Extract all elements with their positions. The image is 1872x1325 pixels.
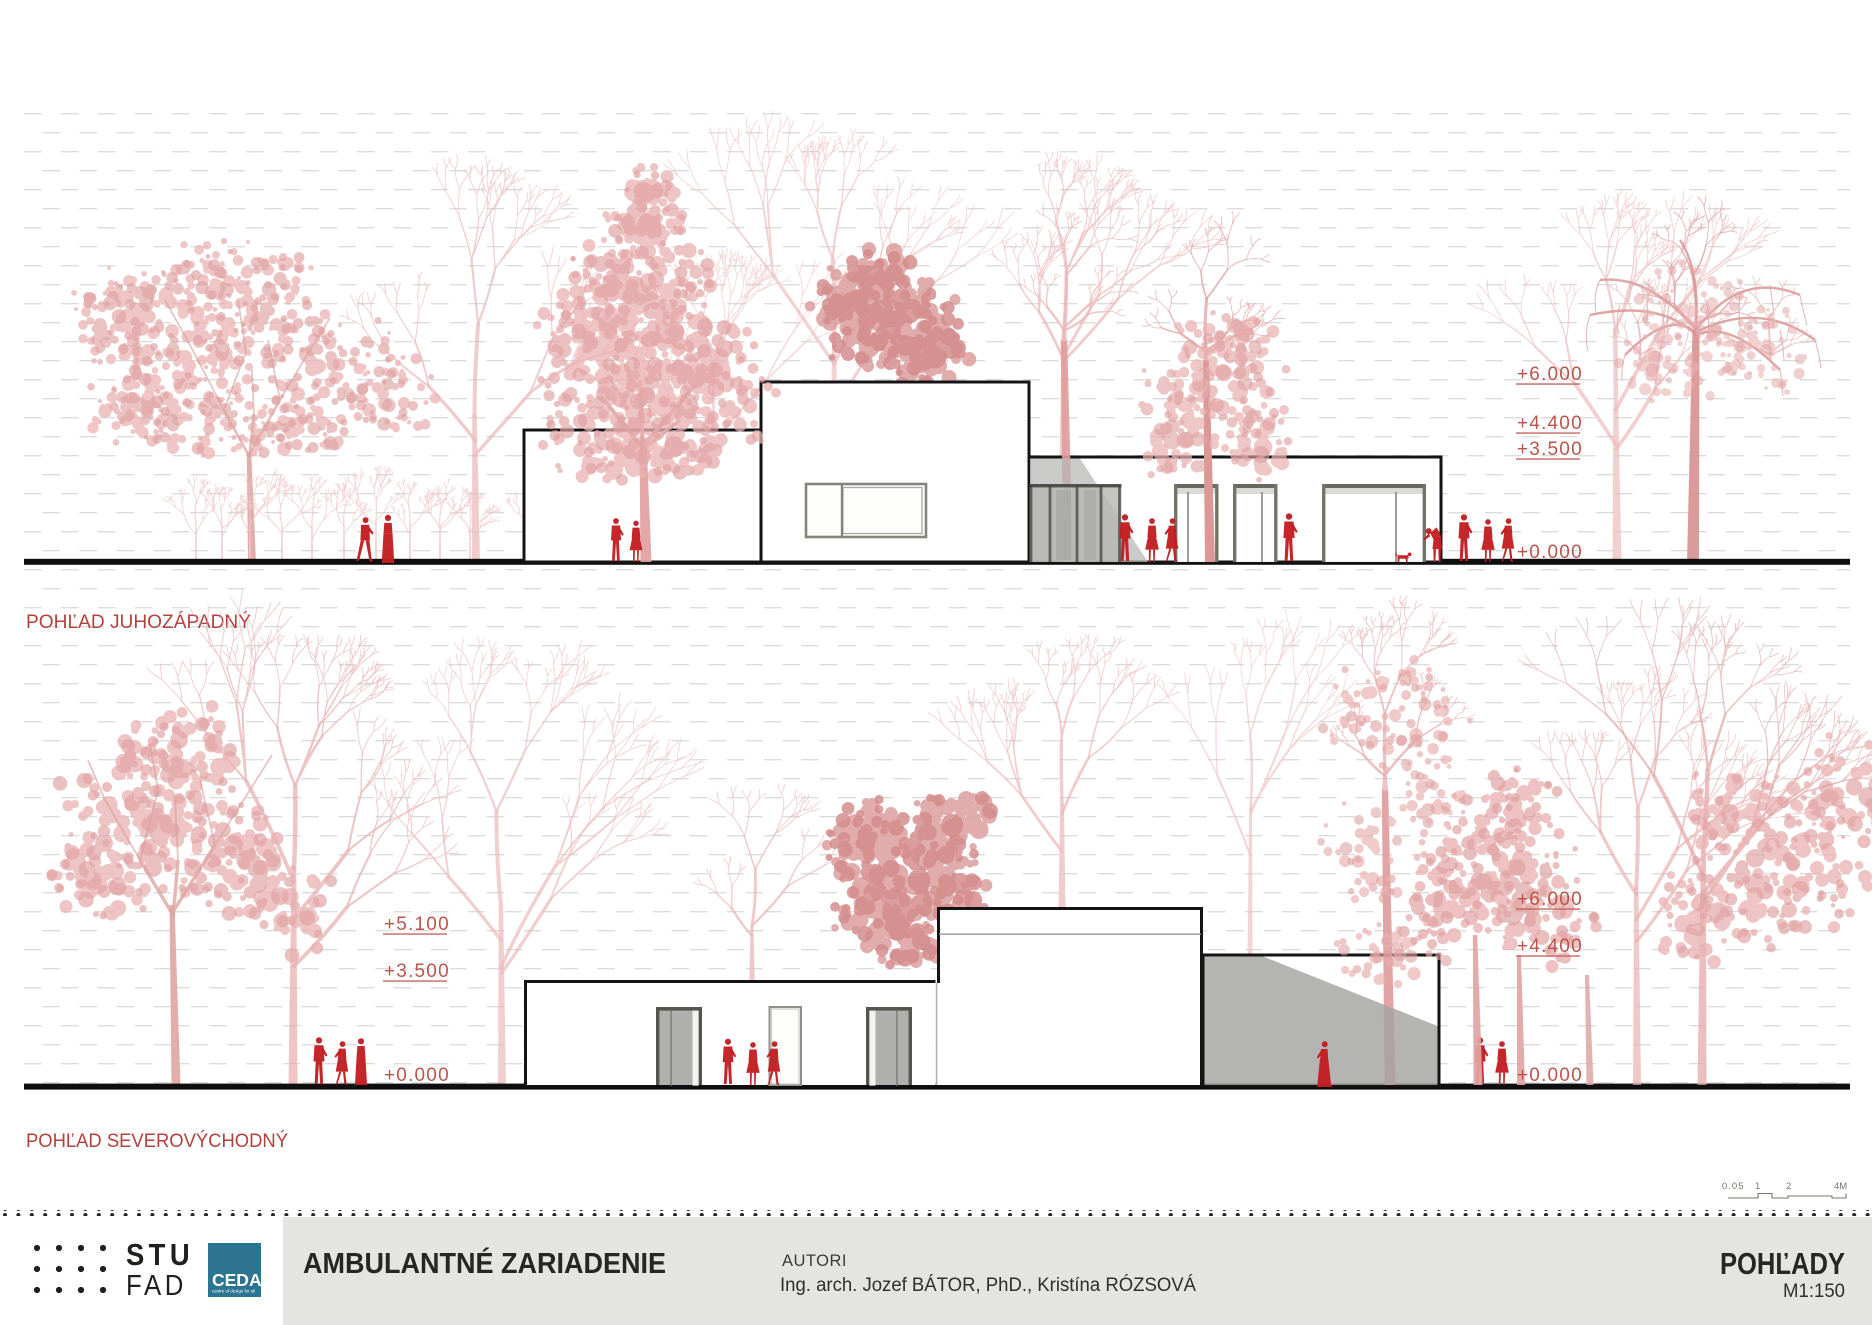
svg-text:STU: STU <box>126 1237 194 1272</box>
svg-text:+6.000: +6.000 <box>1517 889 1583 910</box>
svg-text:+6.000: +6.000 <box>1517 364 1583 385</box>
svg-text:AMBULANTNÉ ZARIADENIE: AMBULANTNÉ ZARIADENIE <box>303 1246 666 1280</box>
svg-text:+4.400: +4.400 <box>1517 413 1583 434</box>
svg-text:+0.000: +0.000 <box>1517 542 1583 563</box>
svg-text:POHĽAD JUHOZÁPADNÝ: POHĽAD JUHOZÁPADNÝ <box>26 612 251 633</box>
svg-text:centre of design for all: centre of design for all <box>212 1289 255 1294</box>
svg-text:POHĽADY: POHĽADY <box>1720 1246 1845 1281</box>
svg-text:+5.100: +5.100 <box>384 914 450 935</box>
svg-text:+3.500: +3.500 <box>1517 439 1583 460</box>
svg-text:AUTORI: AUTORI <box>782 1251 847 1270</box>
svg-text:+4.400: +4.400 <box>1517 936 1583 957</box>
svg-text:4M: 4M <box>1834 1181 1847 1192</box>
svg-text:FAD: FAD <box>126 1270 187 1302</box>
svg-text:1: 1 <box>1755 1181 1760 1192</box>
svg-text:Ing. arch. Jozef BÁTOR, PhD.,: Ing. arch. Jozef BÁTOR, PhD., Kristína R… <box>780 1274 1196 1296</box>
svg-text:+3.500: +3.500 <box>384 961 450 982</box>
svg-text:2: 2 <box>1786 1181 1791 1192</box>
svg-text:0.05: 0.05 <box>1722 1181 1745 1192</box>
svg-text:M1:150: M1:150 <box>1783 1280 1845 1302</box>
svg-text:POHĽAD SEVEROVÝCHODNÝ: POHĽAD SEVEROVÝCHODNÝ <box>26 1131 288 1152</box>
svg-text:+0.000: +0.000 <box>1517 1065 1583 1086</box>
svg-text:CEDA: CEDA <box>212 1270 262 1290</box>
svg-text:+0.000: +0.000 <box>384 1065 450 1086</box>
